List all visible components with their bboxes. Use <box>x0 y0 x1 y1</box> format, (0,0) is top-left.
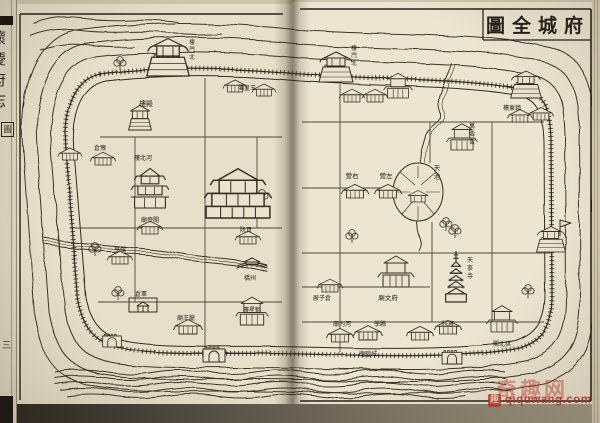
spine-boxed-char: 圖 <box>1 122 14 137</box>
map-label: 倉軍 <box>135 290 147 298</box>
north-gate-tower-left-icon <box>147 39 190 77</box>
northeast-corner-tower-icon <box>511 71 542 98</box>
tianning-pagoda-icon <box>446 251 467 302</box>
map-label: 樓門北 <box>351 44 357 67</box>
hebei-tower-icon <box>131 168 168 208</box>
map-label: 厫子倉 <box>313 294 331 302</box>
southwest-gate-icon <box>103 334 122 347</box>
buildings <box>58 39 571 365</box>
map-label: 學儒 <box>114 246 126 254</box>
map-label: 閣皇玉 <box>238 84 256 92</box>
zhou-bridge-icon <box>237 258 267 268</box>
map-label: 樓東鎮 <box>503 104 521 112</box>
tree-icon <box>114 57 126 70</box>
granary-icon <box>90 152 116 165</box>
south-gate-left-icon <box>203 347 225 362</box>
south-row-b-icon <box>406 326 433 340</box>
watermark: 奇趣网 趣 qiquwang.com <box>468 376 600 418</box>
map-label: 院貢 <box>240 226 252 234</box>
walled-compound-icon <box>129 298 157 312</box>
west-wall-building-icon <box>58 148 82 160</box>
map-label: 廟內河 <box>333 320 351 328</box>
east-gate-tower-icon <box>537 227 566 253</box>
photo-corner-dark-top <box>0 16 13 25</box>
south-gate-right-icon <box>442 351 462 365</box>
map-label: 天池 <box>434 164 441 181</box>
book-spine-strip: 懷慶府志 圖 三 <box>0 0 17 423</box>
map-label: 廟帝關 <box>141 216 159 224</box>
prefecture-confucian-temple-icon <box>378 256 414 287</box>
map-label: 倉豫 <box>94 144 106 152</box>
map-label: 學縣 <box>374 320 386 328</box>
page-edges-band <box>592 0 600 423</box>
watermark-logo-icon: 趣 <box>488 394 501 407</box>
map-label: 廟隍城 <box>359 350 377 358</box>
map-label: 營右 <box>346 171 360 180</box>
map-label: 萬壽宮 <box>469 122 475 146</box>
map-label: 樓北河 <box>134 154 152 162</box>
map-label: 樓門北 <box>189 38 195 61</box>
granary-right-icon <box>317 279 343 292</box>
book-gutter-shadow <box>274 0 310 423</box>
central-complex-icon <box>205 169 272 218</box>
map-label: 樓殿 <box>139 99 153 108</box>
row-house-a-icon <box>339 89 365 102</box>
south-row-a-icon <box>326 328 353 342</box>
map-label: 閣北拱 <box>493 340 511 348</box>
row-house-b-icon <box>362 89 388 102</box>
map-label: 廟文府 <box>378 293 398 302</box>
map-label: 樓星魁 <box>243 306 261 314</box>
map-label: 營左 <box>380 171 394 180</box>
map-label: 天寧寺 <box>467 257 473 280</box>
hall-tower-icon <box>129 105 152 130</box>
tree-icon <box>112 287 124 300</box>
gongbei-pavilion-icon <box>487 306 518 332</box>
scanned-map-photo: 樓殿樓北河倉豫閣皇玉廟帝關院貢橋州學儒倉軍廟王龍樓星魁營右營左天池廟隍城廟文府學… <box>0 0 600 423</box>
map-title: 圖全城府 <box>486 11 590 38</box>
tree-icon <box>440 218 452 231</box>
watermark-url: qiquwang.com <box>505 394 592 406</box>
map-label: 廟王龍 <box>177 314 195 322</box>
photo-corner-dark-bottom <box>0 396 13 423</box>
map-label: 橋州 <box>244 274 256 282</box>
tree-icon <box>522 285 534 298</box>
north-gate-tower-right-icon <box>319 52 353 82</box>
right-camp-icon <box>341 184 368 198</box>
map-label: 院察 <box>442 320 454 328</box>
tree-icon <box>346 230 358 243</box>
spine-page-mark: 三 <box>2 338 11 351</box>
spine-rule <box>11 0 12 423</box>
